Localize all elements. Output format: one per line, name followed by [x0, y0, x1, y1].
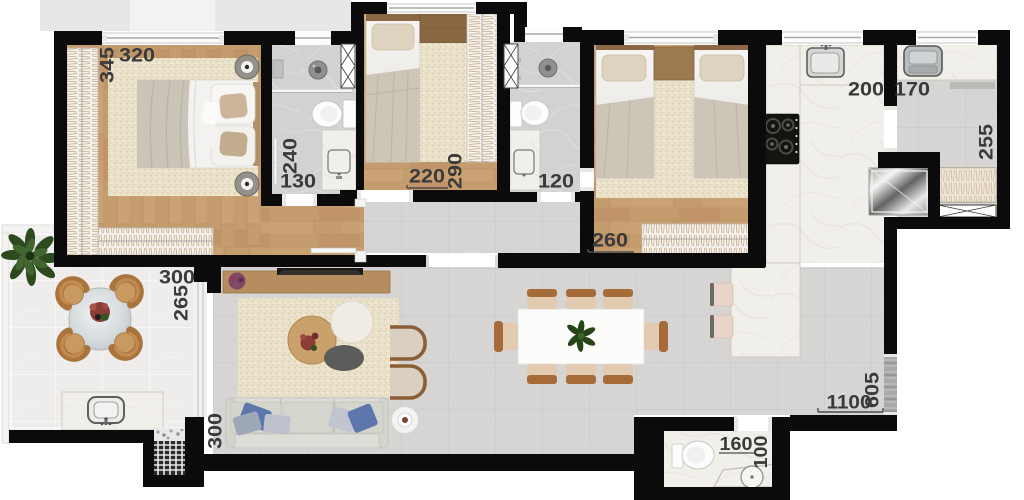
svg-text:170: 170	[894, 80, 930, 101]
svg-text:200: 200	[848, 80, 884, 101]
svg-text:240: 240	[281, 138, 302, 174]
svg-text:260: 260	[592, 231, 628, 252]
svg-text:320: 320	[119, 46, 155, 67]
svg-text:265: 265	[172, 285, 193, 321]
svg-text:100: 100	[751, 436, 771, 469]
svg-text:220: 220	[409, 167, 445, 188]
svg-text:290: 290	[446, 153, 467, 189]
svg-text:345: 345	[98, 47, 119, 83]
svg-text:160: 160	[720, 434, 753, 454]
svg-text:130: 130	[280, 172, 316, 193]
svg-text:605: 605	[863, 372, 884, 408]
svg-text:120: 120	[538, 172, 574, 193]
svg-text:255: 255	[977, 124, 998, 160]
svg-text:300: 300	[206, 413, 227, 449]
